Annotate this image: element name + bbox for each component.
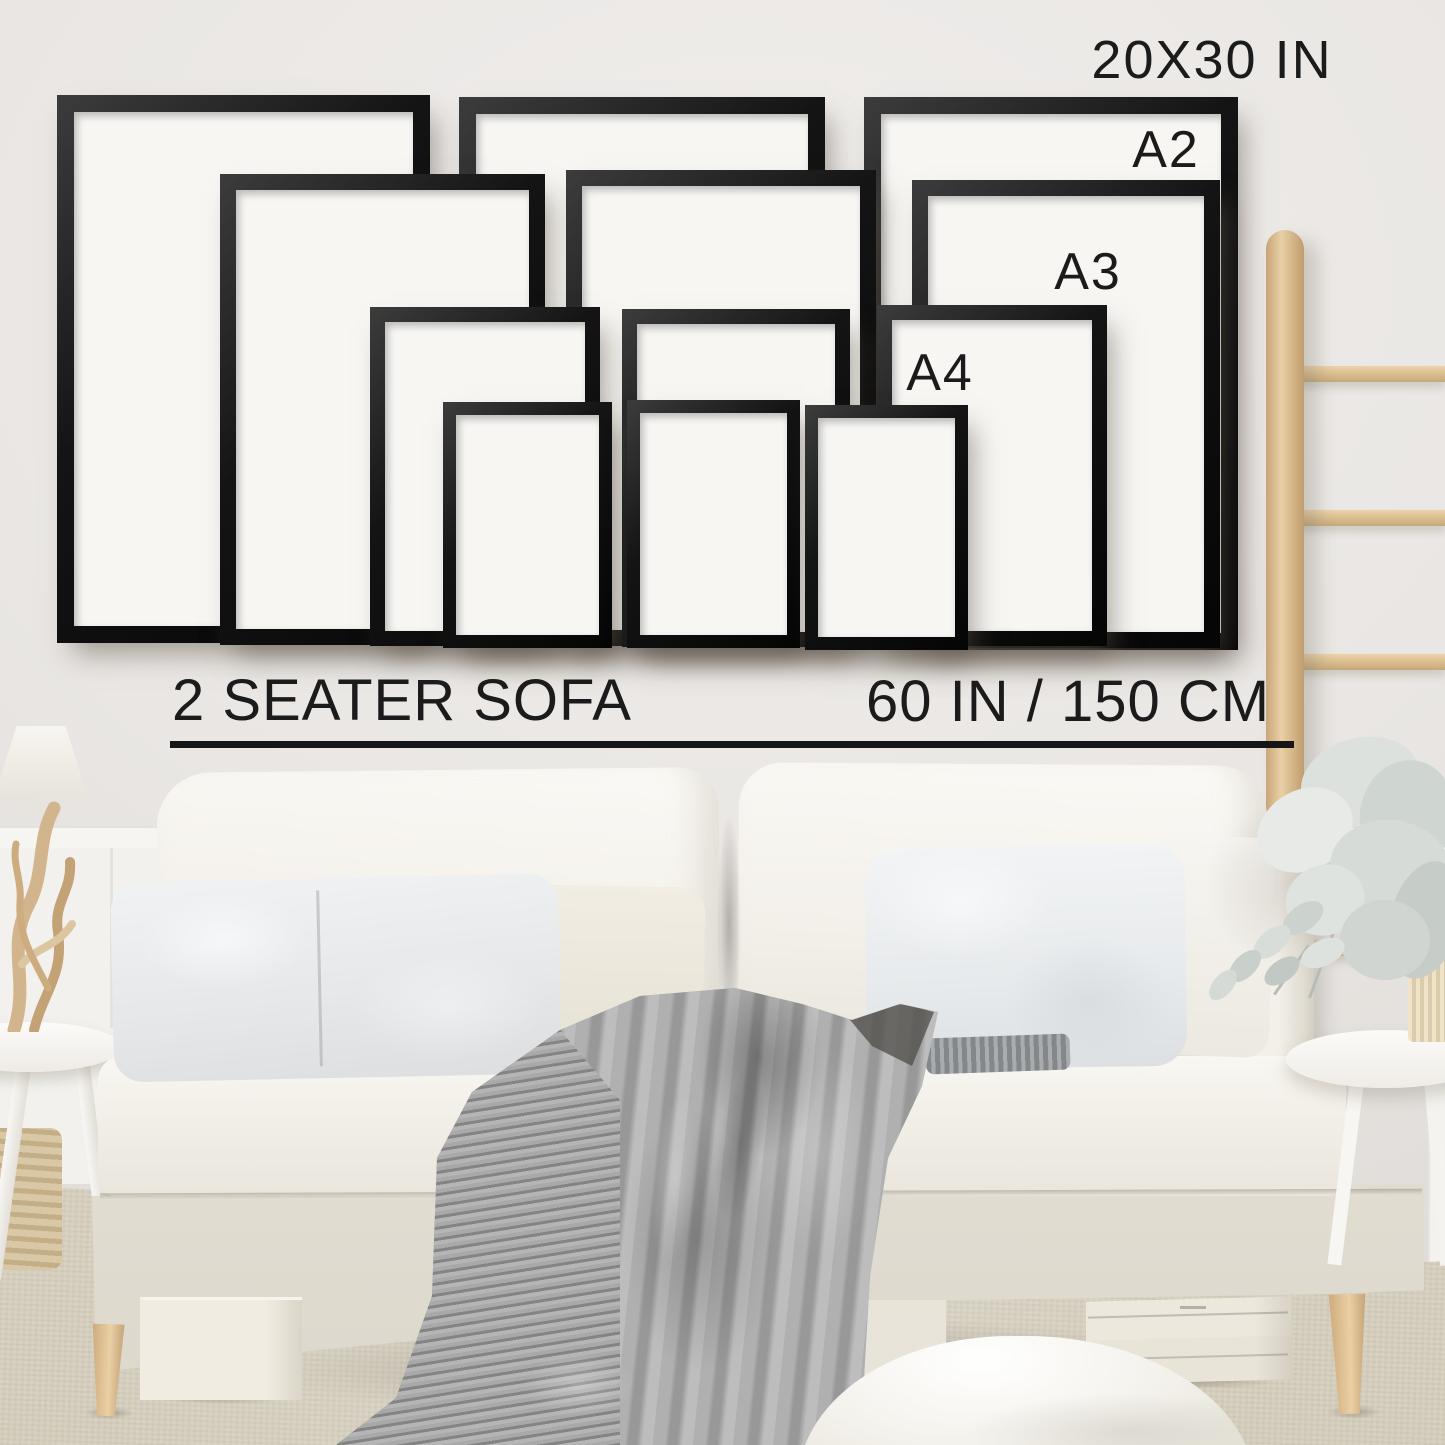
- driftwood-sculpture: [0, 780, 92, 1032]
- caption-sofa-width: 60 IN / 150 CM: [866, 673, 1270, 731]
- box-handle-notch: [1180, 1306, 1206, 1309]
- size-guide-image: 20X30 IN A2 A3 A4 2 SEATER SOFA 60 IN / …: [0, 0, 1445, 1445]
- pillow-lumbar-gray: [110, 873, 562, 1082]
- ribbed-vase: [1408, 904, 1445, 1042]
- ladder-rung: [1294, 654, 1445, 670]
- frame-a4-left: [443, 402, 612, 648]
- ladder-rung: [1294, 797, 1445, 813]
- wainscot-rail-right: [1304, 826, 1445, 850]
- label-largest-size: 20X30 IN: [1091, 33, 1332, 87]
- ladder-pole: [1266, 230, 1304, 850]
- label-a3: A3: [1054, 246, 1122, 298]
- ladder-rung: [1294, 366, 1445, 382]
- frame-a4-middle: [627, 400, 800, 648]
- label-a2: A2: [1132, 124, 1200, 176]
- caption-sofa-type: 2 SEATER SOFA: [172, 672, 632, 730]
- pillow-seam: [316, 890, 323, 1066]
- caption-underline: [170, 741, 1294, 748]
- storage-box-left: [140, 1297, 302, 1400]
- pillow-striped-strip: [925, 1033, 1070, 1074]
- ladder-rung: [1294, 510, 1445, 526]
- blanket-fold-shadow: [684, 1026, 795, 1265]
- frame-a4-right: [805, 405, 968, 650]
- label-a4: A4: [906, 347, 974, 399]
- blanket-highlight: [630, 1057, 721, 1302]
